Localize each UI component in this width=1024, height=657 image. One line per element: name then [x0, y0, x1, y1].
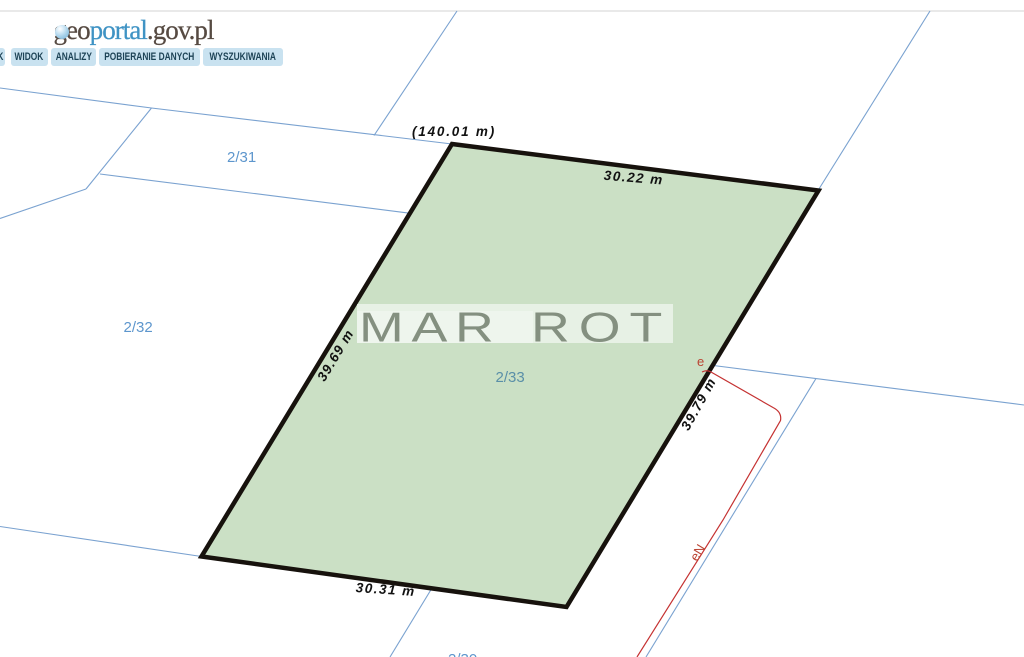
- svg-text:ROT: ROT: [531, 304, 671, 351]
- svg-text:(140.01 m): (140.01 m): [412, 124, 496, 139]
- svg-text:e: e: [697, 354, 704, 369]
- svg-text:2/33: 2/33: [496, 369, 525, 386]
- svg-text:2/31: 2/31: [227, 149, 256, 166]
- svg-text:2/32: 2/32: [124, 319, 153, 336]
- svg-text:MAR: MAR: [359, 304, 501, 351]
- svg-text:2/30: 2/30: [448, 651, 477, 657]
